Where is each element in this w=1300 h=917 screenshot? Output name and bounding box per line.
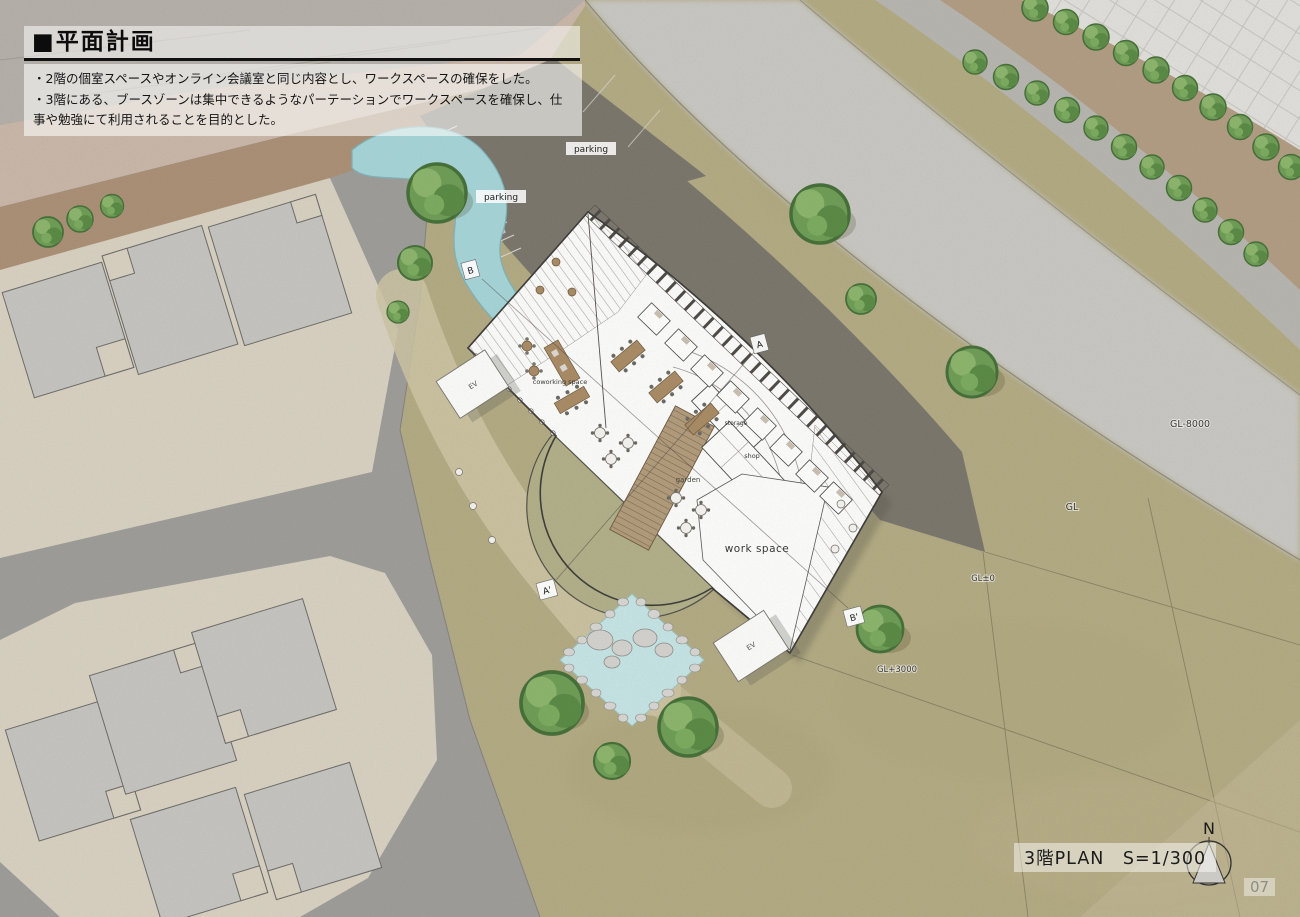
title-block: ■平面計画 [24, 26, 580, 61]
notes-block: ・2階の個室スペースやオンライン会議室と同じ内容とし、ワークスペースの確保をした… [24, 64, 582, 136]
paper-grain [0, 0, 1300, 917]
presentation-page: EV EV B B' A A' parking parking coworkin… [0, 0, 1300, 917]
note-line-1: ・2階の個室スペースやオンライン会議室と同じ内容とし、ワークスペースの確保をした… [33, 69, 573, 90]
plan-scale-label: 3階PLAN S=1/300 [1014, 843, 1216, 872]
note-line-2: ・3階にある、ブースゾーンは集中できるようなパーテーションでワークスペースを確保… [33, 90, 573, 131]
page-title: ■平面計画 [24, 26, 580, 61]
page-number: 07 [1244, 878, 1275, 896]
site-plan-drawing: EV EV B B' A A' parking parking coworkin… [0, 0, 1300, 917]
